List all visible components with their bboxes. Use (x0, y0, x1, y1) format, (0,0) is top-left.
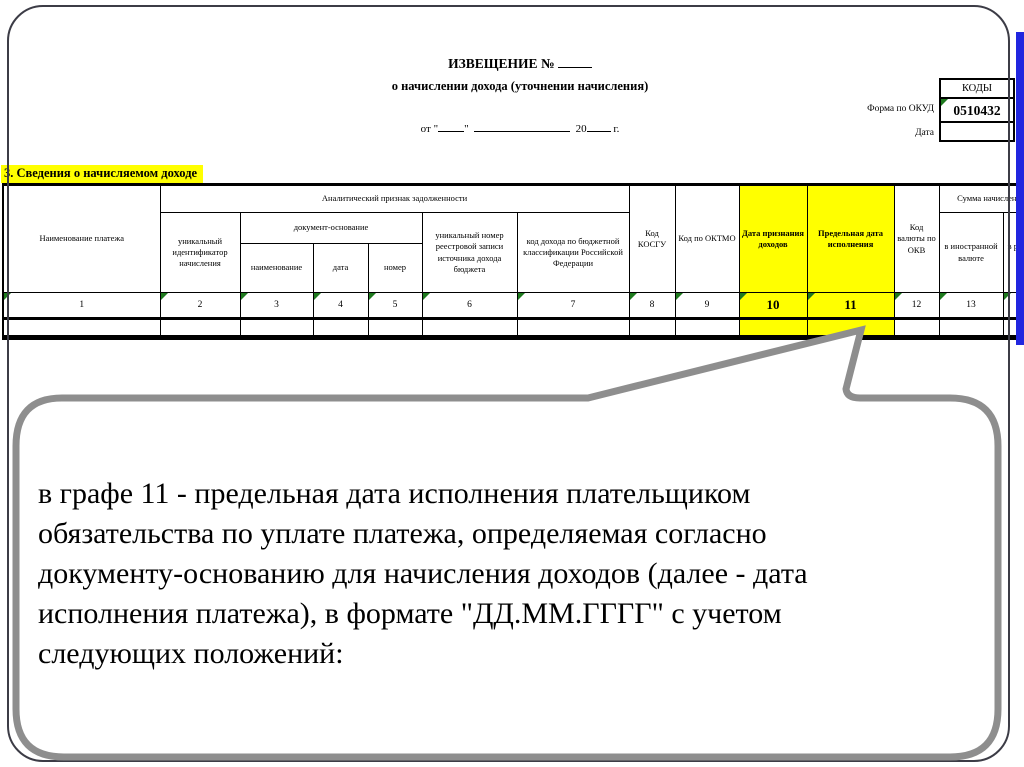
group-header-sum: Сумма начисления (939, 185, 1019, 213)
excel-corner-marker (941, 99, 948, 106)
col-number-label: 6 (467, 300, 472, 310)
col-number-label: 7 (571, 300, 576, 310)
col-number-label: 3 (274, 300, 279, 310)
callout-text-line: в графе 11 - предельная дата исполнения … (38, 474, 943, 514)
empty-data-cell (368, 319, 422, 338)
date-quote: " (464, 123, 469, 135)
form-table-region: Наименование платежа Аналитический призн… (2, 183, 1019, 340)
empty-data-cell (675, 319, 739, 338)
form-title: ИЗВЕЩЕНИЕ № (320, 56, 720, 72)
excel-corner-marker (314, 293, 321, 300)
empty-data-cell (240, 319, 313, 338)
col-number-9: 9 (675, 293, 739, 319)
col-number-label: 9 (705, 300, 710, 310)
col-number-8: 8 (629, 293, 675, 319)
group-header-analytic-sign: Аналитический признак задолженности (160, 185, 629, 213)
excel-corner-marker (676, 293, 683, 300)
col-number-11: 11 (807, 293, 894, 319)
col-header-budget-code: код дохода по бюджетной классификации Ро… (517, 213, 629, 293)
excel-corner-marker (630, 293, 637, 300)
col-number-4: 4 (313, 293, 368, 319)
excel-corner-marker (740, 293, 747, 300)
okud-form-label: Форма по ОКУД (806, 104, 934, 114)
col-number-label: 2 (198, 300, 203, 310)
col-number-7: 7 (517, 293, 629, 319)
codes-header-cell: КОДЫ (939, 78, 1015, 99)
blank-line (558, 56, 592, 68)
col-number-label: 10 (767, 297, 780, 312)
empty-data-cell (939, 319, 1003, 338)
col-number-13: 13 (939, 293, 1003, 319)
col-number-label: 4 (338, 300, 343, 310)
okud-code-value: 0510432 (953, 103, 1000, 118)
col-header-income-recognition-date: Дата признания доходов (739, 185, 807, 293)
date-from-label: от " (421, 123, 438, 135)
excel-corner-marker (241, 293, 248, 300)
empty-data-cell (807, 319, 894, 338)
form-title-block: ИЗВЕЩЕНИЕ № о начислении дохода (уточнен… (320, 56, 720, 135)
empty-data-cell (517, 319, 629, 338)
col-number-label: 12 (912, 300, 922, 310)
col-header-uin: уникальный идентификатор начисления (160, 213, 240, 293)
table-right-edge-bar (1016, 32, 1024, 345)
col-number-2: 2 (160, 293, 240, 319)
form-subtitle: о начислении дохода (уточнении начислени… (320, 79, 720, 94)
excel-corner-marker (518, 293, 525, 300)
col-header-currency-code: Код валюты по ОКВ (894, 185, 939, 293)
empty-data-cell (422, 319, 517, 338)
excel-corner-marker (940, 293, 947, 300)
empty-data-cell (313, 319, 368, 338)
section-3-header: 3. Сведения о начисляемом доходе (1, 165, 203, 183)
col-header-oktmo: Код по ОКТМО (675, 185, 739, 293)
callout-text-line: обязательства по уплате платежа, определ… (38, 514, 943, 554)
empty-data-cell (160, 319, 240, 338)
date-year-prefix: 20 (576, 123, 587, 135)
col-header-doc-date: дата (313, 244, 368, 293)
empty-data-cell (3, 319, 160, 338)
col-header-doc-name: наименование (240, 244, 313, 293)
callout-text-line: документу-основанию для начисления доход… (38, 554, 943, 594)
date-year-suffix: г. (613, 123, 619, 135)
excel-corner-marker (808, 293, 815, 300)
col-number-3: 3 (240, 293, 313, 319)
blank-line (438, 120, 464, 132)
blank-line (474, 120, 570, 132)
date-code-cell (939, 121, 1015, 142)
col-number-12: 12 (894, 293, 939, 319)
excel-corner-marker (1004, 293, 1011, 300)
empty-data-cell (894, 319, 939, 338)
empty-data-cell (629, 319, 675, 338)
col-header-kosgu: Код КОСГУ (629, 185, 675, 293)
col-number-label: 5 (393, 300, 398, 310)
blank-line (587, 120, 611, 132)
callout-text-line: следующих положений: (38, 634, 943, 674)
col-number-6: 6 (422, 293, 517, 319)
excel-corner-marker (161, 293, 168, 300)
col-number-10: 10 (739, 293, 807, 319)
col-number-5: 5 (368, 293, 422, 319)
form-title-text: ИЗВЕЩЕНИЕ № (448, 56, 554, 71)
okud-code-cell: 0510432 (939, 97, 1015, 123)
excel-corner-marker (895, 293, 902, 300)
callout-text: в графе 11 - предельная дата исполнения … (38, 474, 943, 674)
income-accrual-table: Наименование платежа Аналитический призн… (2, 183, 1019, 340)
group-header-doc-base: документ-основание (240, 213, 422, 244)
col-header-deadline-date: Предельная дата исполнения (807, 185, 894, 293)
col-header-payment-name: Наименование платежа (3, 185, 160, 293)
excel-corner-marker (423, 293, 430, 300)
col-header-foreign-currency: в иностранной валюте (939, 213, 1003, 293)
date-field-label: Дата (806, 128, 934, 138)
col-number-label: 1 (79, 300, 84, 310)
callout-text-line: исполнения платежа), в формате "ДД.ММ.ГГ… (38, 594, 943, 634)
codes-box-stack: КОДЫ 0510432 (939, 78, 1015, 142)
col-number-1: 1 (3, 293, 160, 319)
excel-corner-marker (369, 293, 376, 300)
empty-data-cell (739, 319, 807, 338)
col-header-doc-number: номер (368, 244, 422, 293)
col-header-registry-number: уникальный номер реестровой записи источ… (422, 213, 517, 293)
col-number-label: 8 (650, 300, 655, 310)
col-number-label: 11 (844, 297, 856, 312)
col-number-label: 13 (966, 300, 976, 310)
form-date-line: от "" 20 г. (320, 120, 720, 135)
excel-corner-marker (4, 293, 11, 300)
